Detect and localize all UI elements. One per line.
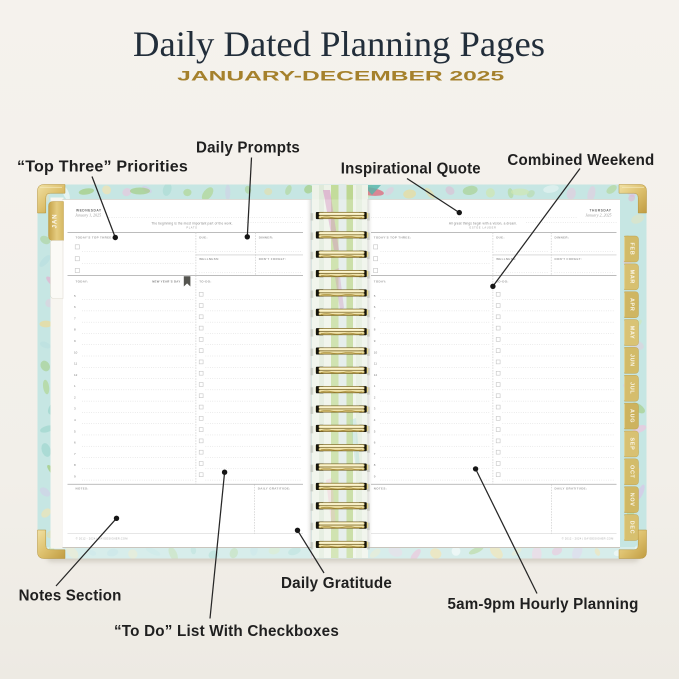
svg-text:NOTES:: NOTES: bbox=[76, 487, 89, 491]
svg-text:11: 11 bbox=[74, 362, 77, 366]
svg-text:DON’T FORGET:: DON’T FORGET: bbox=[555, 257, 582, 261]
svg-text:DAILY GRATITUDE:: DAILY GRATITUDE: bbox=[555, 487, 588, 491]
svg-text:DUE:: DUE: bbox=[199, 236, 208, 240]
svg-text:APR: APR bbox=[628, 298, 634, 311]
svg-text:JAN: JAN bbox=[52, 214, 59, 229]
svg-text:JUN: JUN bbox=[628, 354, 634, 367]
svg-text:MAR: MAR bbox=[628, 270, 634, 284]
svg-text:Daily Gratitude: Daily Gratitude bbox=[281, 575, 392, 592]
svg-text:TO-DO:: TO-DO: bbox=[199, 279, 212, 283]
svg-text:NOTES:: NOTES: bbox=[374, 487, 387, 491]
svg-text:Combined Weekend: Combined Weekend bbox=[507, 152, 654, 169]
svg-text:All great things begin with a: All great things begin with a vision, a … bbox=[449, 221, 517, 225]
svg-text:© 2012 - 2024 | DAYDESIGNER.CO: © 2012 - 2024 | DAYDESIGNER.COM bbox=[562, 536, 614, 540]
svg-text:TODAY’S TOP THREE:: TODAY’S TOP THREE: bbox=[76, 236, 114, 240]
svg-text:ESTEE LAUDER: ESTEE LAUDER bbox=[470, 225, 497, 229]
svg-text:TODAY:: TODAY: bbox=[76, 279, 89, 283]
svg-text:12: 12 bbox=[74, 373, 78, 377]
svg-text:Daily Dated Planning Pages: Daily Dated Planning Pages bbox=[133, 24, 545, 64]
svg-text:JUL: JUL bbox=[628, 382, 634, 394]
svg-text:11: 11 bbox=[374, 362, 377, 366]
svg-text:AUG: AUG bbox=[628, 409, 634, 423]
svg-text:10: 10 bbox=[74, 350, 78, 354]
svg-text:Inspirational Quote: Inspirational Quote bbox=[341, 161, 481, 178]
svg-text:12: 12 bbox=[374, 373, 378, 377]
svg-text:PLATO: PLATO bbox=[186, 225, 197, 229]
svg-text:The beginning is the most impo: The beginning is the most important part… bbox=[151, 221, 232, 225]
svg-text:DINNER:: DINNER: bbox=[259, 236, 274, 240]
svg-text:DUE:: DUE: bbox=[496, 236, 505, 240]
svg-text:Notes Section: Notes Section bbox=[19, 588, 122, 605]
svg-text:Daily Prompts: Daily Prompts bbox=[196, 139, 300, 156]
svg-text:“Top Three” Priorities: “Top Three” Priorities bbox=[17, 159, 188, 176]
svg-text:DINNER:: DINNER: bbox=[555, 236, 570, 240]
svg-text:5am-9pm Hourly Planning: 5am-9pm Hourly Planning bbox=[448, 596, 639, 613]
svg-text:OCT: OCT bbox=[628, 465, 634, 478]
svg-text:10: 10 bbox=[374, 350, 378, 354]
svg-text:NEW YEAR’S DAY: NEW YEAR’S DAY bbox=[152, 279, 180, 283]
svg-text:NOV: NOV bbox=[628, 493, 634, 507]
svg-text:SEP: SEP bbox=[628, 438, 634, 451]
svg-text:FEB: FEB bbox=[628, 243, 634, 256]
svg-text:DEC: DEC bbox=[628, 521, 634, 534]
svg-text:JANUARY-DECEMBER 2025: JANUARY-DECEMBER 2025 bbox=[177, 68, 504, 84]
svg-text:TODAY:: TODAY: bbox=[374, 279, 387, 283]
svg-text:© 2012 - 2024 | DAYDESIGNER.CO: © 2012 - 2024 | DAYDESIGNER.COM bbox=[76, 536, 128, 540]
svg-text:WELLNESS:: WELLNESS: bbox=[199, 257, 219, 261]
svg-text:DON’T FORGET:: DON’T FORGET: bbox=[259, 257, 286, 261]
svg-text:MAY: MAY bbox=[628, 326, 634, 340]
svg-text:“To Do” List With Checkboxes: “To Do” List With Checkboxes bbox=[114, 623, 339, 640]
svg-text:DAILY GRATITUDE:: DAILY GRATITUDE: bbox=[258, 487, 291, 491]
svg-text:TODAY’S TOP THREE:: TODAY’S TOP THREE: bbox=[374, 236, 412, 240]
